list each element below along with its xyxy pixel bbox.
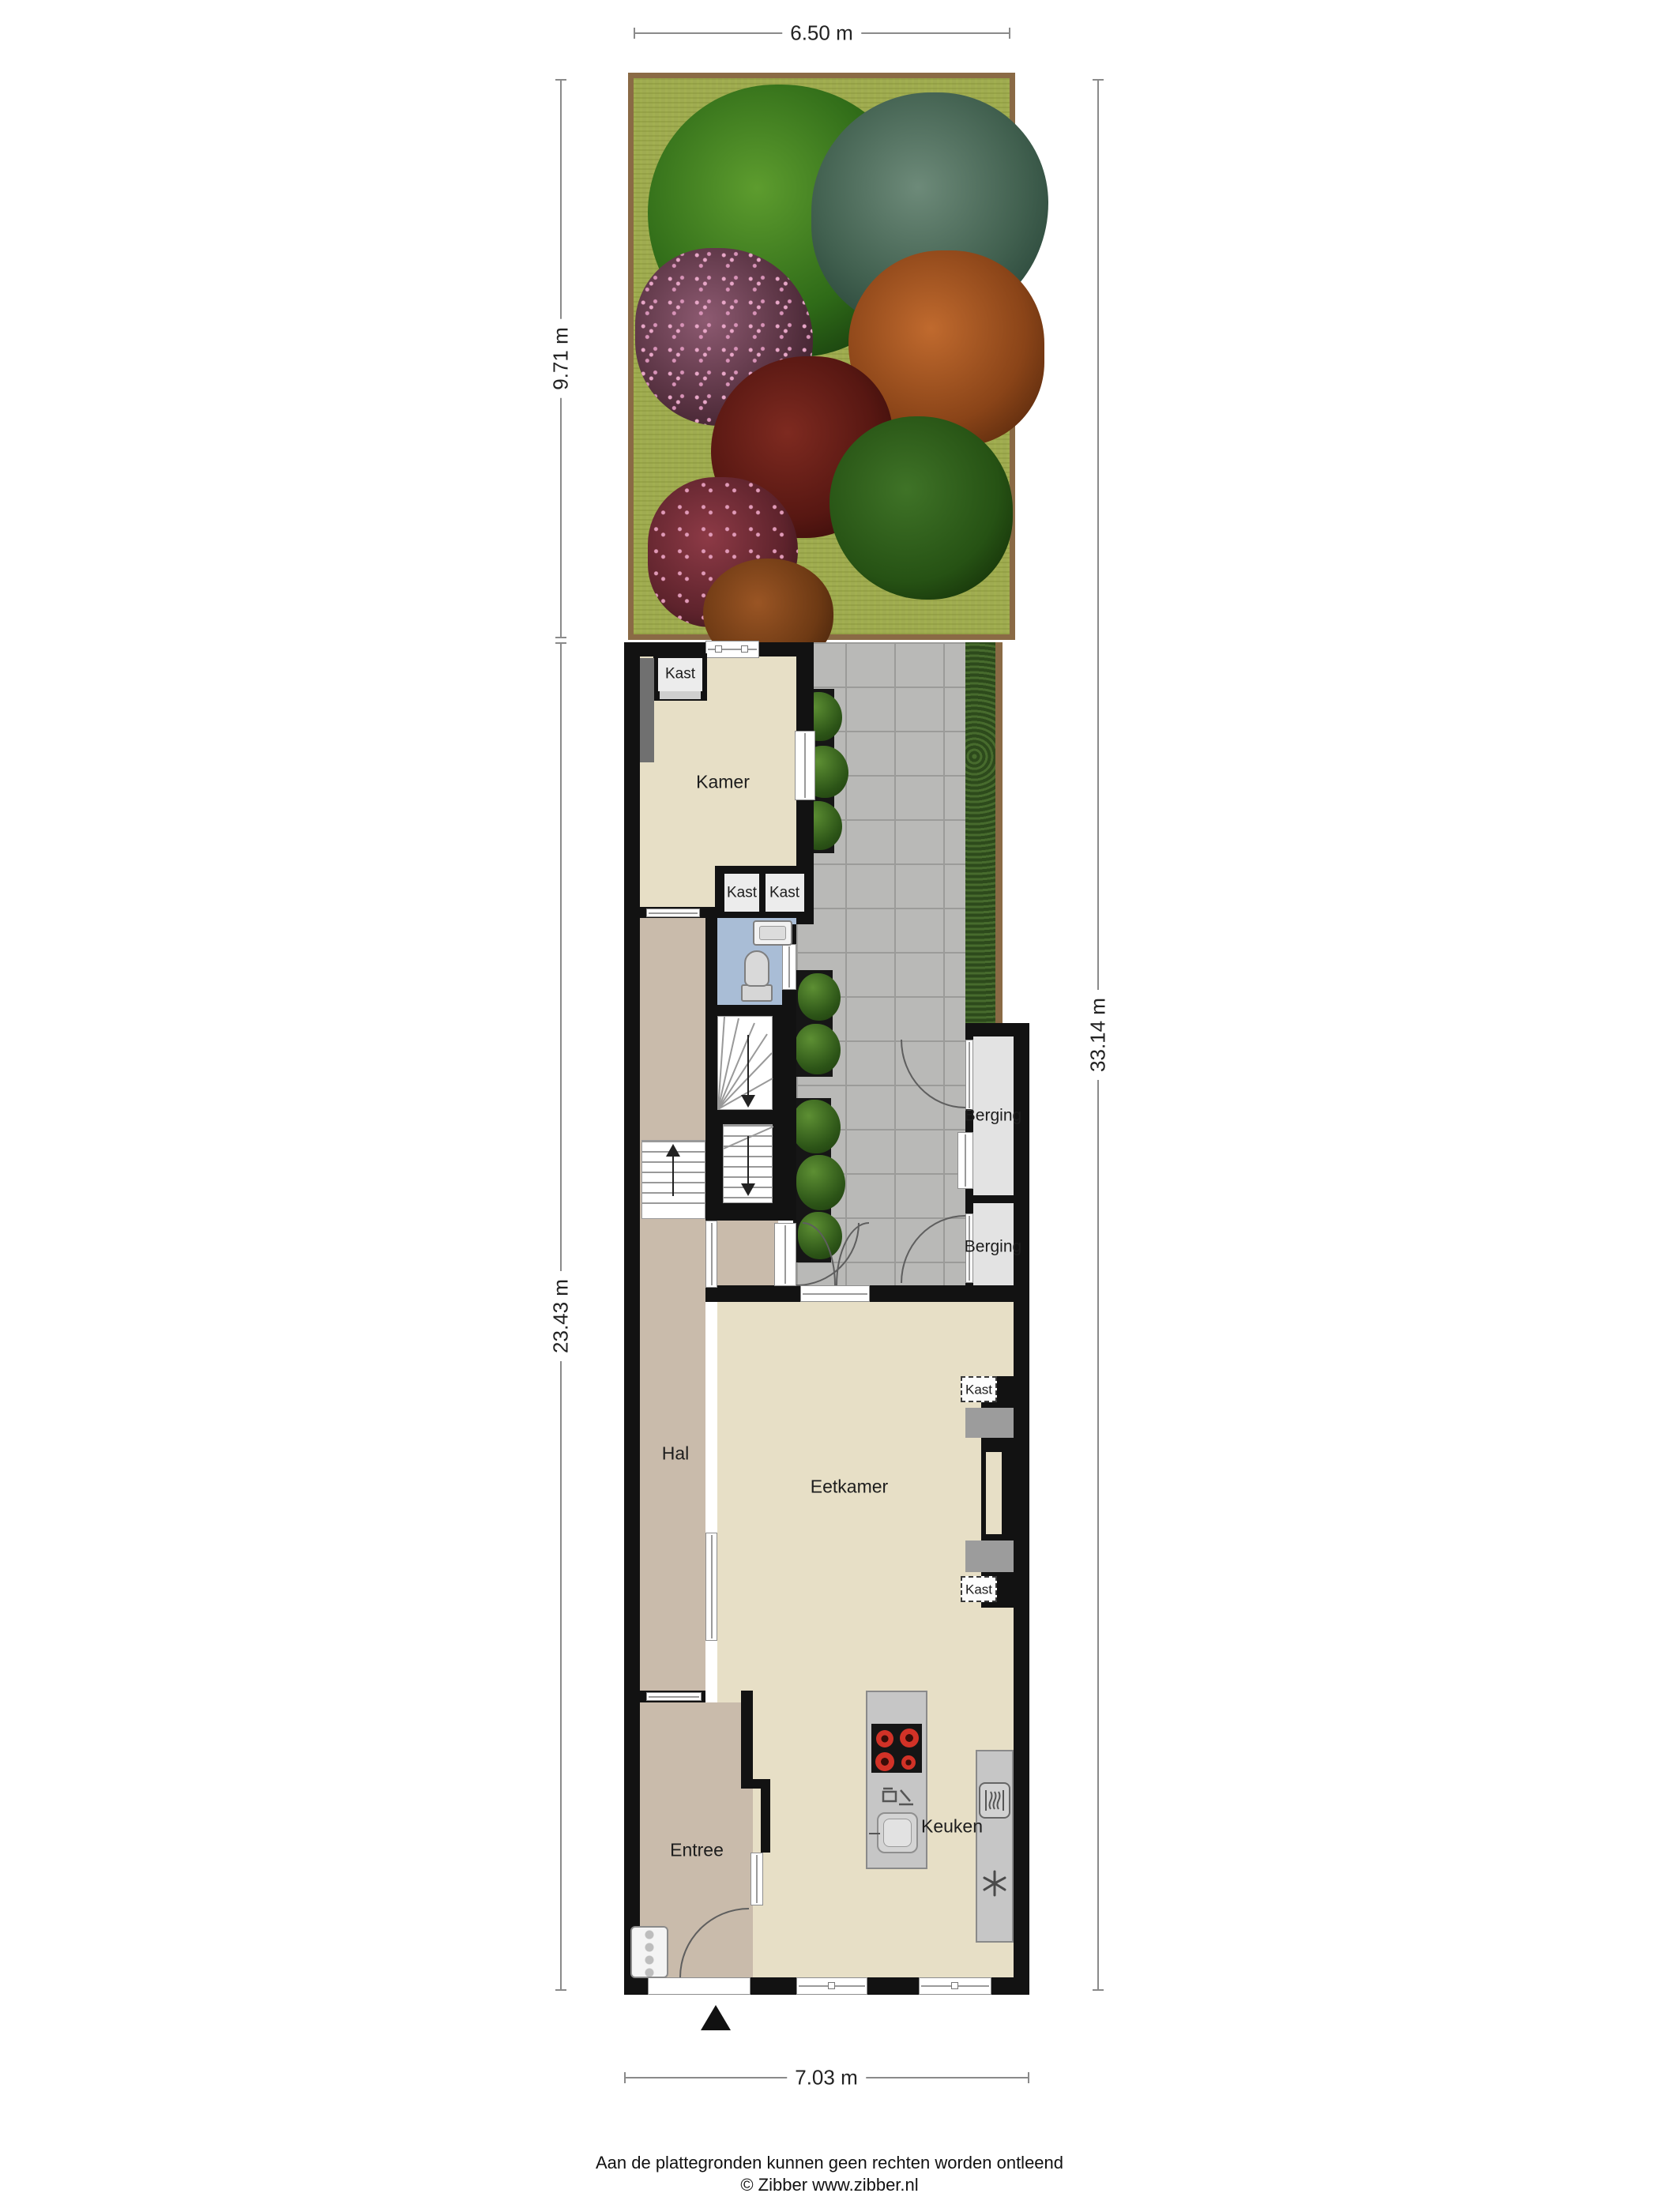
dimension-label-house-left: 23.43 m	[547, 1271, 575, 1361]
window-mullion	[741, 645, 748, 653]
room-label-berging-2: Berging	[965, 1239, 1021, 1255]
stair-down-arrow-icon	[741, 1095, 755, 1108]
window-mullion	[715, 645, 722, 653]
bush-icon	[795, 1024, 841, 1074]
terrace-door	[774, 1223, 796, 1286]
oven-icon	[979, 1782, 1010, 1819]
toilet-icon	[744, 950, 769, 987]
interior-door-opening	[705, 1533, 717, 1641]
dimension-label-top: 6.50 m	[782, 20, 861, 47]
burner	[876, 1730, 893, 1747]
wall-storage-divider	[965, 1195, 1014, 1203]
dishwasher-icon	[877, 1784, 918, 1812]
window-mullion	[951, 1982, 958, 1989]
room-label-keuken: Keuken	[921, 1818, 983, 1836]
sink-faucet	[869, 1833, 880, 1834]
wall-entree-dining-a	[741, 1691, 753, 1779]
sink-basin	[883, 1819, 912, 1847]
floor-plan: Kast Kast Kast Kast Kast	[0, 0, 1659, 2212]
burner	[900, 1729, 919, 1747]
wall-toilet-south	[705, 1005, 796, 1016]
kitchen-counter	[976, 1750, 1014, 1943]
window	[782, 944, 796, 990]
closet-shelf	[660, 691, 701, 699]
fence	[995, 642, 1003, 1023]
interior-window	[646, 908, 700, 917]
stair-direction-stem	[672, 1155, 674, 1196]
room-label: Kast	[965, 1583, 992, 1597]
cooktop-icon	[871, 1724, 922, 1773]
wall-storage-north	[965, 1023, 1029, 1036]
garden-grass	[628, 73, 1015, 640]
front-door-opening	[648, 1977, 750, 1995]
dimension-label-garden-left: 9.71 m	[547, 319, 575, 398]
room-label: Kast	[769, 886, 799, 901]
stair-direction-stem	[747, 1136, 749, 1185]
footer-copyright: © Zibber www.zibber.nl	[740, 2175, 918, 2195]
room-label: Kast	[665, 667, 695, 682]
wall-entree-dining-c	[761, 1789, 770, 1853]
extractor-fan-icon	[980, 1869, 1009, 1898]
washbasin-bowl	[759, 926, 786, 940]
bush-icon	[792, 1100, 841, 1153]
wall-entree-dining-b	[741, 1779, 770, 1789]
vestibule-floor	[717, 1221, 778, 1288]
interior-window	[646, 1692, 702, 1701]
hall-floor	[640, 918, 705, 1691]
interior-window	[750, 1853, 763, 1905]
dimension-label-bottom: 7.03 m	[787, 2064, 866, 2092]
window	[705, 641, 759, 658]
window	[957, 1132, 973, 1189]
fireplace-inset	[986, 1452, 1002, 1534]
washbasin-icon	[753, 920, 792, 946]
room-label-entree: Entree	[670, 1841, 724, 1860]
dimension-label-right: 33.14 m	[1085, 990, 1112, 1080]
tree-icon	[829, 416, 1013, 600]
room-label-kamer: Kamer	[696, 773, 750, 792]
chimney-niche-top	[965, 1408, 1014, 1438]
room-label-berging-1: Berging	[965, 1108, 1021, 1124]
footer-disclaimer: Aan de plattegronden kunnen geen rechten…	[596, 2153, 1063, 2173]
glass-door	[705, 1221, 717, 1288]
wall-right-outer	[1014, 1023, 1029, 1995]
bush-icon	[796, 1155, 845, 1210]
room-label: Kast	[965, 1383, 992, 1397]
radiator-icon	[630, 1926, 668, 1978]
chimney-niche-bottom	[965, 1540, 1014, 1572]
room-label-hal: Hal	[662, 1445, 690, 1463]
hedge	[965, 642, 995, 1023]
sink-icon	[877, 1812, 918, 1853]
wall-left-outer	[624, 642, 640, 1995]
burner	[875, 1752, 894, 1771]
wall-stair-east	[773, 1016, 796, 1110]
storage-door-opening	[965, 1040, 973, 1111]
entrance-marker-icon	[701, 2005, 731, 2030]
wall-vestibule-east	[773, 1110, 796, 1221]
window	[795, 731, 815, 800]
stair-down-arrow-icon	[741, 1183, 755, 1196]
double-door-opening	[800, 1285, 870, 1302]
room-label: Kast	[727, 886, 757, 901]
stair-landing	[641, 1203, 705, 1219]
toilet-tank	[741, 984, 773, 1002]
bush-icon	[798, 973, 841, 1021]
wardrobe	[640, 658, 654, 762]
window-mullion	[828, 1982, 835, 1989]
room-label-eetkamer: Eetkamer	[811, 1478, 888, 1496]
burner	[901, 1755, 916, 1770]
stair-direction-stem	[747, 1035, 749, 1097]
